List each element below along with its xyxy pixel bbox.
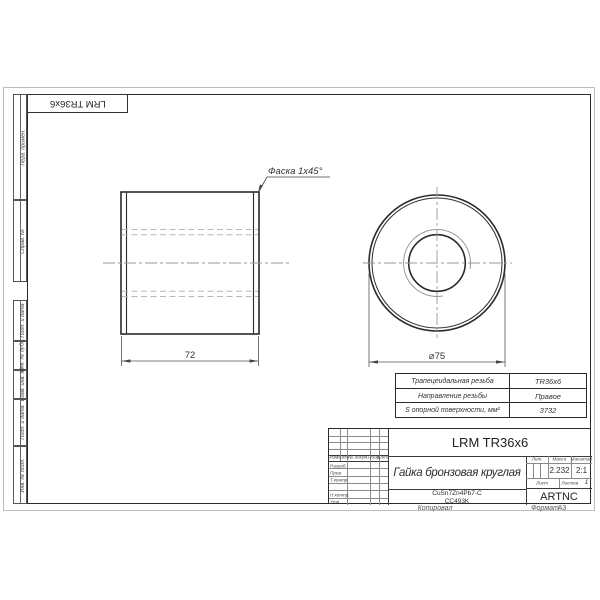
sign-row-tkontr: Т.контр. — [330, 478, 349, 483]
col-header-docnum: № докум. — [347, 455, 370, 462]
sheets-label: Листов — [559, 478, 581, 488]
scale-value: 2:1 — [571, 463, 592, 478]
spec-label: Трапецеидальная резьба — [396, 374, 510, 389]
col-header-list: Лист — [340, 455, 347, 462]
drawing-views: 72 Фаска 1x45° ⌀75 — [0, 0, 600, 600]
arrowhead — [250, 359, 259, 362]
spec-label: S опорной поверхности, мм² — [396, 403, 510, 417]
line — [379, 429, 380, 505]
spec-value: TR36x6 — [510, 374, 586, 389]
arrowhead — [496, 360, 505, 363]
format-value: A3 — [552, 504, 572, 513]
designation-cell: LRM TR36x6 — [388, 429, 592, 456]
company-cell: ARTNC — [526, 488, 592, 505]
line — [533, 463, 534, 478]
sign-row-razrab: Разраб. — [330, 464, 347, 469]
thread-spec-table: Трапецеидальная резьба TR36x6 Направлени… — [395, 373, 587, 418]
diameter-dim-text: ⌀75 — [429, 351, 445, 362]
sign-row-nkontr: Н.контр. — [330, 493, 350, 498]
title-block: Изм. Лист № докум. Подп. Дата Разраб. Пр… — [328, 428, 591, 504]
arrowhead — [258, 184, 263, 193]
sign-row-prov: Пров. — [330, 471, 342, 476]
arrowhead — [369, 360, 378, 363]
end-view: ⌀75 — [363, 187, 512, 367]
mass-value: 2.232 — [548, 463, 571, 478]
scale-label: Масштаб — [571, 456, 592, 463]
line — [540, 463, 541, 478]
line — [370, 429, 371, 505]
mass-label: Масса — [548, 456, 571, 463]
length-dim-text: 72 — [185, 350, 196, 361]
sign-row-utv: Утв. — [330, 500, 340, 505]
spec-value: 3732 — [510, 403, 586, 417]
chamfer-leader — [258, 177, 330, 193]
drawing-page: { "page": { "line_color": "#2a2a2a", "hi… — [0, 0, 600, 600]
chamfer-note-text: Фаска 1x45° — [268, 166, 323, 177]
table-row: Трапецеидальная резьба TR36x6 — [396, 374, 586, 389]
sheet-label: Лист — [526, 478, 559, 488]
side-view: 72 Фаска 1x45° — [103, 166, 330, 366]
table-row: S опорной поверхности, мм² 3732 — [396, 402, 586, 417]
arrowhead — [122, 359, 131, 362]
col-header-data: Дата — [379, 455, 388, 462]
lit-label: Лит. — [526, 456, 548, 463]
part-name-cell: Гайка бронзовая круглая — [388, 456, 526, 489]
copied-label: Копировал — [395, 504, 475, 513]
sheets-value: 1 — [581, 478, 592, 488]
